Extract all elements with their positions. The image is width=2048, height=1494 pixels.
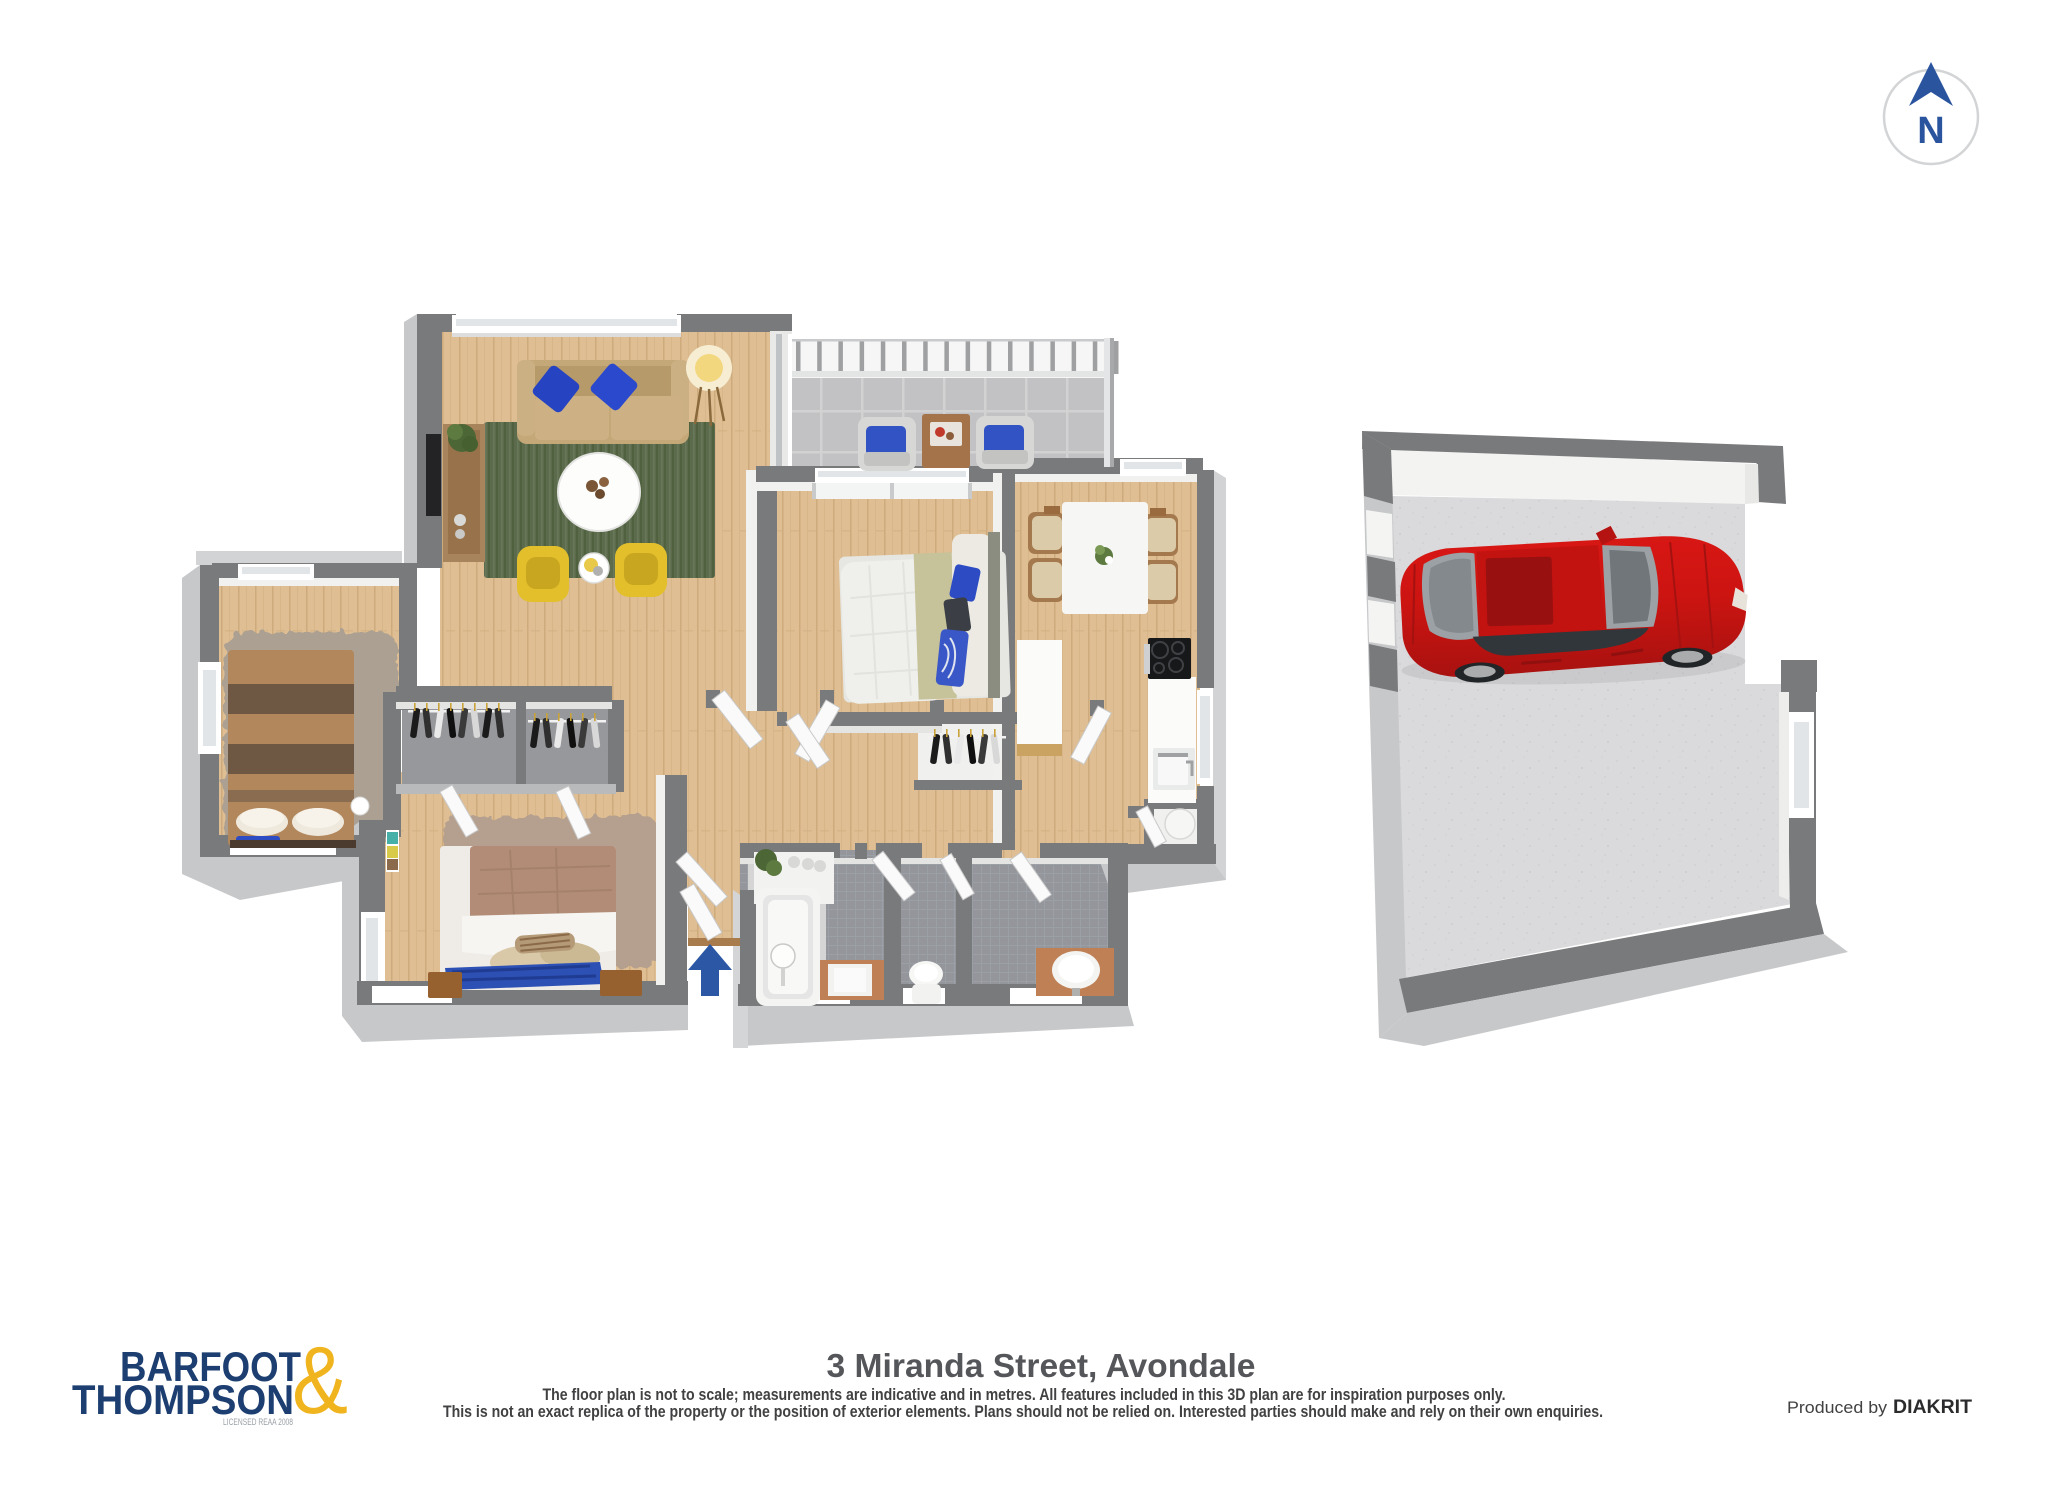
svg-text:LICENSED REAA 2008: LICENSED REAA 2008	[223, 1417, 293, 1427]
svg-text:N: N	[1917, 110, 1944, 152]
svg-text:THOMPSON: THOMPSON	[72, 1376, 294, 1423]
svg-text:DIAKRIT: DIAKRIT	[1893, 1397, 1972, 1418]
svg-text:&: &	[292, 1327, 348, 1434]
svg-text:3 Miranda Street, Avondale: 3 Miranda Street, Avondale	[827, 1347, 1256, 1384]
svg-text:Produced by: Produced by	[1787, 1398, 1888, 1417]
svg-text:This is not an exact replica o: This is not an exact replica of the prop…	[443, 1402, 1603, 1421]
